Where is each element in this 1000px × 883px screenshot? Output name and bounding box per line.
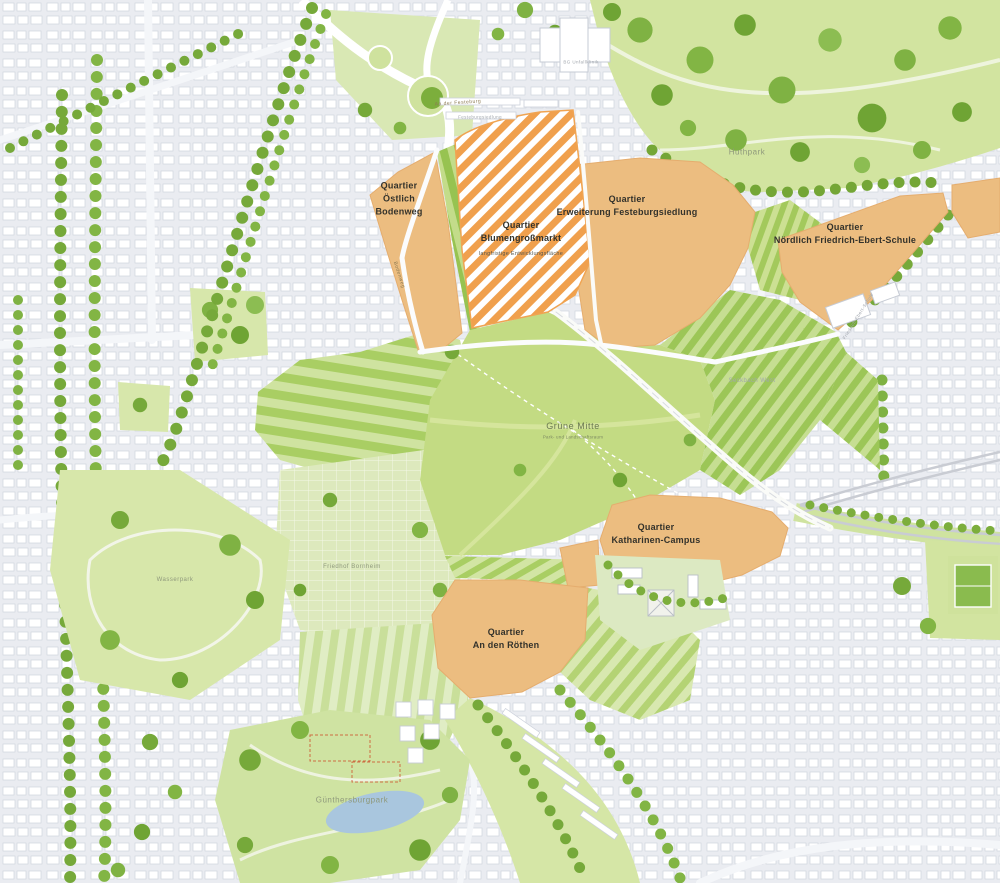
quarter-blumengrossmarkt-area — [455, 110, 590, 328]
masterplan-map: Quartier Östlich Bodenweg Quartier Blume… — [0, 0, 1000, 883]
map-canvas — [0, 0, 1000, 883]
